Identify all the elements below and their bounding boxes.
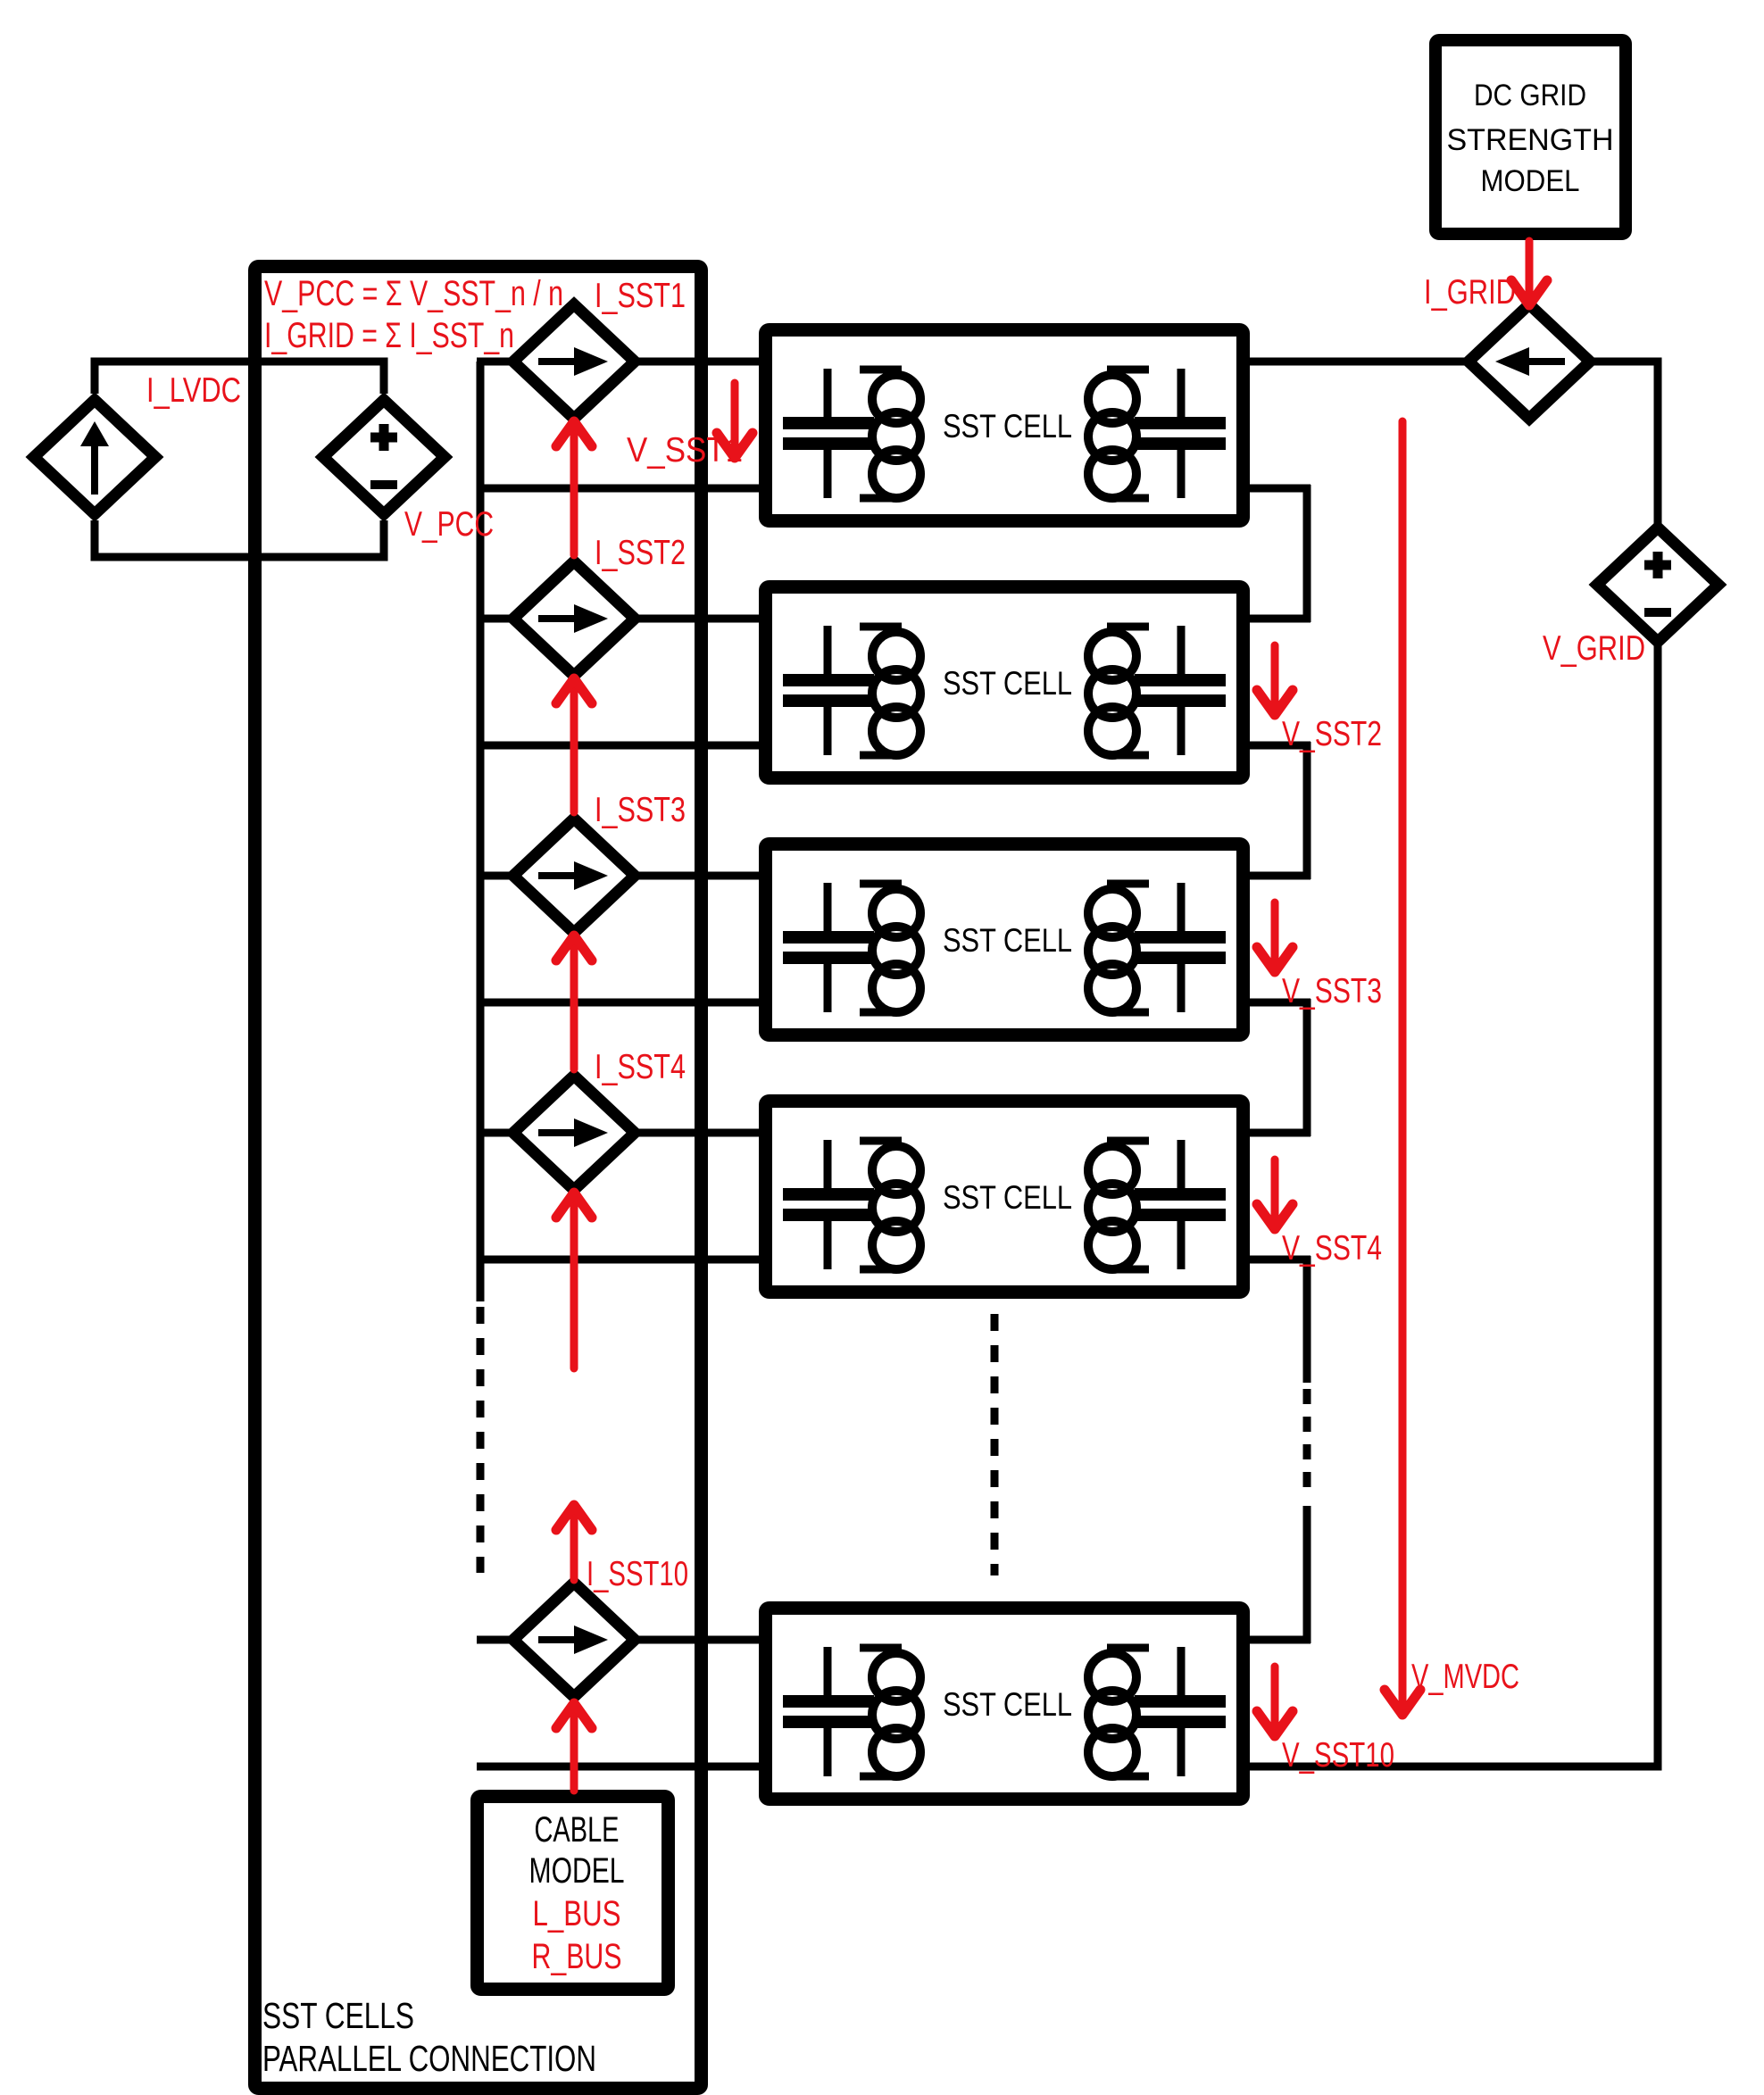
svg-text:I_SST4: I_SST4 [595, 1048, 686, 1086]
svg-text:SST CELL: SST CELL [943, 408, 1072, 445]
svg-text:SST CELL: SST CELL [943, 1686, 1072, 1723]
svg-text:V_SST1: V_SST1 [627, 431, 743, 470]
svg-text:I_LVDC: I_LVDC [146, 371, 241, 410]
svg-text:STRENGTH: STRENGTH [1447, 123, 1614, 157]
svg-text:MODEL: MODEL [1481, 164, 1580, 198]
svg-text:MODEL: MODEL [529, 1851, 625, 1891]
svg-text:DC GRID: DC GRID [1474, 79, 1586, 112]
svg-text:I_GRID = Σ I_SST_n: I_GRID = Σ I_SST_n [264, 316, 514, 355]
svg-text:V_PCC: V_PCC [404, 505, 494, 544]
svg-text:I_SST10: I_SST10 [587, 1555, 688, 1593]
svg-text:V_PCC = Σ V_SST_n / n: V_PCC = Σ V_SST_n / n [264, 274, 563, 313]
svg-text:V_SST10: V_SST10 [1282, 1736, 1394, 1775]
svg-text:I_GRID: I_GRID [1424, 273, 1516, 312]
svg-text:I_SST3: I_SST3 [595, 791, 686, 829]
svg-text:V_GRID: V_GRID [1543, 629, 1645, 668]
svg-text:SST CELL: SST CELL [943, 1179, 1072, 1216]
svg-text:SST CELL: SST CELL [943, 665, 1072, 702]
svg-text:V_SST2: V_SST2 [1282, 715, 1382, 753]
svg-text:L_BUS: L_BUS [533, 1894, 621, 1933]
svg-text:R_BUS: R_BUS [532, 1937, 622, 1976]
svg-text:I_SST2: I_SST2 [595, 534, 686, 572]
svg-text:CABLE: CABLE [535, 1810, 620, 1850]
svg-text:V_SST3: V_SST3 [1282, 972, 1382, 1010]
svg-text:PARALLEL CONNECTION: PARALLEL CONNECTION [262, 2038, 596, 2079]
svg-text:V_MVDC: V_MVDC [1411, 1658, 1519, 1696]
svg-text:SST CELLS: SST CELLS [262, 1995, 414, 2036]
svg-text:SST CELL: SST CELL [943, 922, 1072, 959]
svg-text:I_SST1: I_SST1 [595, 277, 686, 315]
svg-text:V_SST4: V_SST4 [1282, 1229, 1382, 1268]
